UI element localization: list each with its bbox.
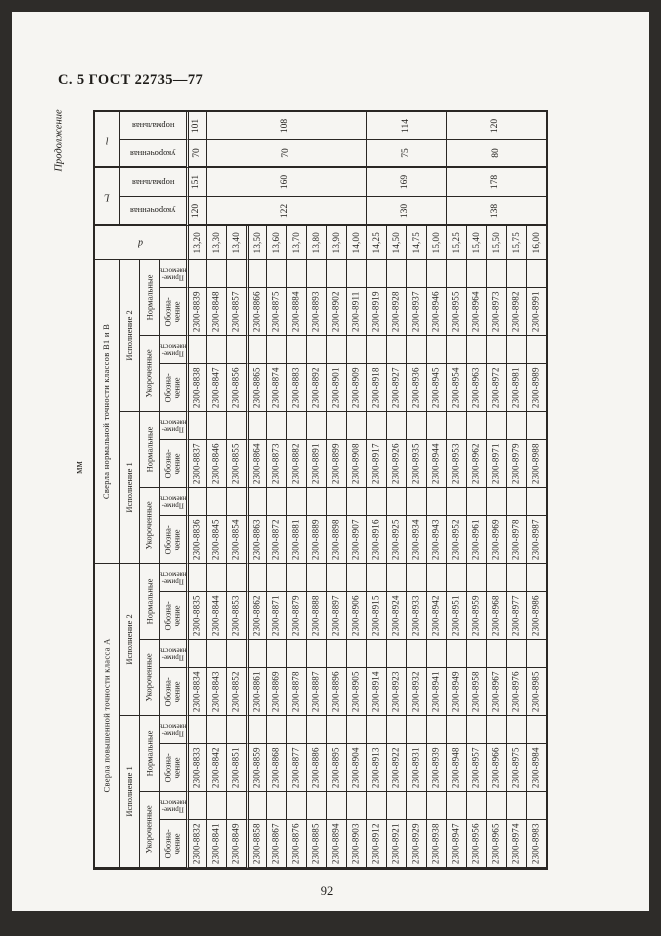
applicability-cell [227,336,247,364]
col-header-designation: Обозна- чение [160,820,187,868]
d-value-cell: 15,50 [487,226,507,260]
designation-cell: 2300-8877 [287,744,307,792]
applicability-cell [347,564,367,592]
col-header-version1: Исполнение 1 [120,412,140,564]
applicability-cell [427,336,447,364]
applicability-cell [467,412,487,440]
designation-cell: 2300-8942 [427,592,447,640]
designation-cell: 2300-8873 [267,440,287,488]
applicability-cell [367,260,387,288]
length-value-cell: 138 [447,197,547,226]
applicability-cell [487,564,507,592]
length-value-cell: 178 [447,168,547,197]
applicability-cell [407,716,427,744]
designation-cell: 2300-8951 [447,592,467,640]
applicability-cell [267,640,287,668]
designation-cell: 2300-8907 [347,516,367,564]
applicability-cell [487,716,507,744]
designation-cell: 2300-8895 [327,744,347,792]
applicability-cell [447,336,467,364]
d-value-cell: 14,75 [407,226,427,260]
applicability-cell [267,336,287,364]
applicability-cell [367,412,387,440]
designation-cell: 2300-8845 [207,516,227,564]
designation-cell: 2300-8856 [227,364,247,412]
designation-cell: 2300-8865 [246,364,267,412]
applicability-cell [307,336,327,364]
applicability-cell [186,260,207,288]
designation-cell: 2300-8891 [307,440,327,488]
designation-cell: 2300-8961 [467,516,487,564]
applicability-cell [327,412,347,440]
designation-cell: 2300-8943 [427,516,447,564]
designation-cell: 2300-8925 [387,516,407,564]
applicability-cell [246,488,267,516]
applicability-cell [507,716,527,744]
designation-cell: 2300-8879 [287,592,307,640]
applicability-cell [287,488,307,516]
applicability-cell [467,792,487,820]
designation-cell: 2300-8955 [447,288,467,336]
applicability-cell [186,640,207,668]
designation-cell: 2300-8936 [407,364,427,412]
scanned-gost-page: { "page": { "header": "С. 5 ГОСТ 22735—7… [0,0,661,936]
applicability-cell [527,640,547,668]
applicability-cell [207,564,227,592]
length-normal-label: нормальная [120,112,187,140]
col-header-type-normal: Нормальные [140,564,160,640]
col-header-designation: Обозна- чение [160,440,187,488]
applicability-cell [287,336,307,364]
col-header-applicability: Приме- няемость [160,260,187,288]
d-column-label: d [95,226,187,260]
applicability-cell [307,260,327,288]
applicability-cell [487,488,507,516]
applicability-cell [267,488,287,516]
designation-cell: 2300-8968 [487,592,507,640]
designation-cell: 2300-8915 [367,592,387,640]
doc-header: С. 5 ГОСТ 22735—77 [58,72,203,89]
designation-cell: 2300-8972 [487,364,507,412]
applicability-cell [367,336,387,364]
designation-cell: 2300-8965 [487,820,507,868]
designation-cell: 2300-8969 [487,516,507,564]
designation-cell: 2300-8908 [347,440,367,488]
designation-cell: 2300-8902 [327,288,347,336]
designation-cell: 2300-8854 [227,516,247,564]
applicability-cell [227,716,247,744]
applicability-cell [327,488,347,516]
designation-cell: 2300-8887 [307,668,327,716]
designation-cell: 2300-8949 [447,668,467,716]
applicability-cell [387,412,407,440]
applicability-cell [207,640,227,668]
designation-cell: 2300-8953 [447,440,467,488]
l-group-label: l [95,112,120,168]
applicability-cell [447,488,467,516]
applicability-cell [287,412,307,440]
applicability-cell [507,792,527,820]
designation-cell: 2300-8982 [507,288,527,336]
designation-cell: 2300-8988 [527,440,547,488]
designation-cell: 2300-8857 [227,288,247,336]
designation-cell: 2300-8837 [186,440,207,488]
applicability-cell [427,716,447,744]
designation-cell: 2300-8934 [407,516,427,564]
designation-cell: 2300-8852 [227,668,247,716]
designation-cell: 2300-8958 [467,668,487,716]
designation-cell: 2300-8866 [246,288,267,336]
applicability-cell [327,564,347,592]
applicability-cell [367,792,387,820]
col-header-applicability: Приме- няемость [160,564,187,592]
col-header-designation: Обозна- чение [160,668,187,716]
designation-cell: 2300-8872 [267,516,287,564]
length-short-label: укороченная [120,140,187,168]
applicability-cell [407,336,427,364]
designation-cell: 2300-8864 [246,440,267,488]
designation-cell: 2300-8974 [507,820,527,868]
designation-cell: 2300-8838 [186,364,207,412]
applicability-cell [227,640,247,668]
length-value-cell: 151 [186,168,207,197]
length-value-cell: 120 [186,197,207,226]
col-header-applicability: Приме- няемость [160,716,187,744]
applicability-cell [427,640,447,668]
designation-cell: 2300-8894 [327,820,347,868]
designation-cell: 2300-8897 [327,592,347,640]
applicability-cell [527,260,547,288]
designation-cell: 2300-8983 [527,820,547,868]
col-header-applicability: Приме- няемость [160,792,187,820]
applicability-cell [207,716,227,744]
applicability-cell [367,640,387,668]
applicability-cell [467,488,487,516]
d-value-cell: 13,50 [246,226,267,260]
designation-cell: 2300-8933 [407,592,427,640]
designation-cell: 2300-8921 [387,820,407,868]
designation-cell: 2300-8938 [427,820,447,868]
applicability-cell [207,792,227,820]
col-header-designation: Обозна- чение [160,516,187,564]
col-header-type-normal: Нормальные [140,412,160,488]
designation-cell: 2300-8964 [467,288,487,336]
L-group-label: L [95,168,120,226]
designation-cell: 2300-8914 [367,668,387,716]
applicability-cell [267,564,287,592]
applicability-cell [347,412,367,440]
col-header-applicability: Приме- няемость [160,336,187,364]
applicability-cell [447,716,467,744]
col-header-type-short: Укороченные [140,336,160,412]
applicability-cell [487,640,507,668]
length-value-cell: 120 [447,112,547,140]
designation-cell: 2300-8979 [507,440,527,488]
length-normal-label: нормальная [120,168,187,197]
applicability-cell [387,260,407,288]
applicability-cell [347,716,367,744]
applicability-cell [227,260,247,288]
length-value-cell: 122 [207,197,367,226]
designation-cell: 2300-8947 [447,820,467,868]
designation-cell: 2300-8924 [387,592,407,640]
length-short-label: укороченная [120,197,187,226]
applicability-cell [267,260,287,288]
designation-cell: 2300-8989 [527,364,547,412]
length-value-cell: 130 [367,197,447,226]
d-value-cell: 13,70 [287,226,307,260]
designation-cell: 2300-8922 [387,744,407,792]
applicability-cell [387,488,407,516]
applicability-cell [527,716,547,744]
applicability-cell [527,792,547,820]
length-value-cell: 80 [447,140,547,168]
designation-cell: 2300-8874 [267,364,287,412]
designation-cell: 2300-8984 [527,744,547,792]
col-header-applicability: Приме- няемость [160,412,187,440]
d-value-cell: 15,25 [447,226,467,260]
designation-cell: 2300-8869 [267,668,287,716]
applicability-cell [246,564,267,592]
designation-cell: 2300-8937 [407,288,427,336]
length-value-cell: 70 [186,140,207,168]
designation-cell: 2300-8901 [327,364,347,412]
d-value-cell: 13,80 [307,226,327,260]
designation-cell: 2300-8836 [186,516,207,564]
applicability-cell [387,640,407,668]
d-value-cell: 13,90 [327,226,347,260]
col-header-applicability: Приме- няемость [160,488,187,516]
designation-cell: 2300-8889 [307,516,327,564]
applicability-cell [487,792,507,820]
applicability-cell [427,564,447,592]
designation-cell: 2300-8978 [507,516,527,564]
designation-cell: 2300-8841 [207,820,227,868]
designation-cell: 2300-8846 [207,440,227,488]
applicability-cell [507,640,527,668]
length-value-cell: 160 [207,168,367,197]
designation-cell: 2300-8893 [307,288,327,336]
designation-cell: 2300-8868 [267,744,287,792]
designation-cell: 2300-8967 [487,668,507,716]
designation-cell: 2300-8977 [507,592,527,640]
col-header-type-short: Укороченные [140,640,160,716]
designation-cell: 2300-8971 [487,440,507,488]
applicability-cell [447,640,467,668]
col-header-applicability: Приме- няемость [160,640,187,668]
applicability-cell [507,564,527,592]
designation-cell: 2300-8833 [186,744,207,792]
designation-cell: 2300-8945 [427,364,447,412]
d-value-cell: 14,50 [387,226,407,260]
designation-cell: 2300-8919 [367,288,387,336]
designation-cell: 2300-8863 [246,516,267,564]
applicability-cell [267,716,287,744]
applicability-cell [186,412,207,440]
page: С. 5 ГОСТ 22735—77 Продолжение мм lнорма… [12,12,649,911]
applicability-cell [427,260,447,288]
designation-cell: 2300-8962 [467,440,487,488]
designation-cell: 2300-8871 [267,592,287,640]
designation-cell: 2300-8886 [307,744,327,792]
d-value-cell: 15,40 [467,226,487,260]
designation-cell: 2300-8985 [527,668,547,716]
designation-cell: 2300-8862 [246,592,267,640]
d-value-cell: 14,25 [367,226,387,260]
designation-cell: 2300-8876 [287,820,307,868]
applicability-cell [186,564,207,592]
designation-cell: 2300-8844 [207,592,227,640]
designation-cell: 2300-8896 [327,668,347,716]
applicability-cell [347,336,367,364]
designation-cell: 2300-8847 [207,364,227,412]
page-number: 92 [310,884,344,899]
d-value-cell: 13,20 [186,226,207,260]
designation-cell: 2300-8867 [267,820,287,868]
designation-cell: 2300-8849 [227,820,247,868]
applicability-cell [207,488,227,516]
applicability-cell [527,336,547,364]
designation-cell: 2300-8981 [507,364,527,412]
col-header-designation: Обозна- чение [160,744,187,792]
designation-cell: 2300-8916 [367,516,387,564]
col-header-designation: Обозна- чение [160,364,187,412]
applicability-cell [327,640,347,668]
designation-cell: 2300-8892 [307,364,327,412]
applicability-cell [467,640,487,668]
designation-cell: 2300-8834 [186,668,207,716]
applicability-cell [527,564,547,592]
designation-cell: 2300-8939 [427,744,447,792]
designation-cell: 2300-8918 [367,364,387,412]
applicability-cell [287,564,307,592]
applicability-cell [387,792,407,820]
designation-cell: 2300-8842 [207,744,227,792]
designation-cell: 2300-8848 [207,288,227,336]
applicability-cell [447,412,467,440]
designation-cell: 2300-8906 [347,592,367,640]
col-header-type-short: Укороченные [140,488,160,564]
designation-cell: 2300-8926 [387,440,407,488]
applicability-cell [246,792,267,820]
d-value-cell: 13,30 [207,226,227,260]
applicability-cell [307,564,327,592]
designation-cell: 2300-8966 [487,744,507,792]
col-header-type-normal: Нормальные [140,260,160,336]
d-value-cell: 16,00 [527,226,547,260]
applicability-cell [507,260,527,288]
designation-cell: 2300-8884 [287,288,307,336]
length-value-cell: 108 [207,112,367,140]
applicability-cell [507,412,527,440]
designation-cell: 2300-8835 [186,592,207,640]
applicability-cell [367,488,387,516]
applicability-cell [467,716,487,744]
applicability-cell [287,260,307,288]
applicability-cell [407,792,427,820]
designation-cell: 2300-8928 [387,288,407,336]
applicability-cell [207,336,227,364]
applicability-cell [387,716,407,744]
continuation-label: Продолжение [48,94,70,186]
col-header-class-a: Сверла повышенной точности класса А [95,564,120,868]
applicability-cell [327,260,347,288]
designation-cell: 2300-8899 [327,440,347,488]
designation-cell: 2300-8975 [507,744,527,792]
applicability-cell [487,260,507,288]
col-header-version2: Исполнение 2 [120,564,140,716]
designation-cell: 2300-8963 [467,364,487,412]
designation-cell: 2300-8931 [407,744,427,792]
designation-cell: 2300-8987 [527,516,547,564]
units-label: мм [70,452,88,482]
applicability-cell [327,792,347,820]
designation-cell: 2300-8912 [367,820,387,868]
applicability-cell [427,488,447,516]
designation-cell: 2300-8923 [387,668,407,716]
designation-cell: 2300-8881 [287,516,307,564]
applicability-cell [186,716,207,744]
designation-cell: 2300-8941 [427,668,447,716]
length-value-cell: 75 [367,140,447,168]
applicability-cell [407,488,427,516]
designation-cell: 2300-8905 [347,668,367,716]
designation-cell: 2300-8861 [246,668,267,716]
designation-cell: 2300-8839 [186,288,207,336]
applicability-cell [307,792,327,820]
length-value-cell: 114 [367,112,447,140]
col-header-type-normal: Нормальные [140,716,160,792]
designation-cell: 2300-8991 [527,288,547,336]
length-value-cell: 70 [207,140,367,168]
applicability-cell [207,412,227,440]
applicability-cell [186,792,207,820]
designation-cell: 2300-8853 [227,592,247,640]
applicability-cell [407,640,427,668]
col-header-version1: Исполнение 1 [120,716,140,868]
designation-cell: 2300-8956 [467,820,487,868]
applicability-cell [487,412,507,440]
applicability-cell [527,488,547,516]
d-value-cell: 15,00 [427,226,447,260]
applicability-cell [246,640,267,668]
designation-cell: 2300-8932 [407,668,427,716]
applicability-cell [487,336,507,364]
designation-cell: 2300-8903 [347,820,367,868]
applicability-cell [227,564,247,592]
designation-cell: 2300-8917 [367,440,387,488]
applicability-cell [307,412,327,440]
applicability-cell [267,792,287,820]
applicability-cell [467,564,487,592]
applicability-cell [287,716,307,744]
designation-cell: 2300-8929 [407,820,427,868]
applicability-cell [387,336,407,364]
applicability-cell [246,336,267,364]
applicability-cell [507,336,527,364]
applicability-cell [287,640,307,668]
col-header-type-short: Укороченные [140,792,160,868]
designation-cell: 2300-8855 [227,440,247,488]
designation-cell: 2300-8948 [447,744,467,792]
d-value-cell: 13,40 [227,226,247,260]
applicability-cell [407,412,427,440]
applicability-cell [427,792,447,820]
designation-cell: 2300-8952 [447,516,467,564]
applicability-cell [227,792,247,820]
applicability-cell [447,792,467,820]
applicability-cell [447,260,467,288]
